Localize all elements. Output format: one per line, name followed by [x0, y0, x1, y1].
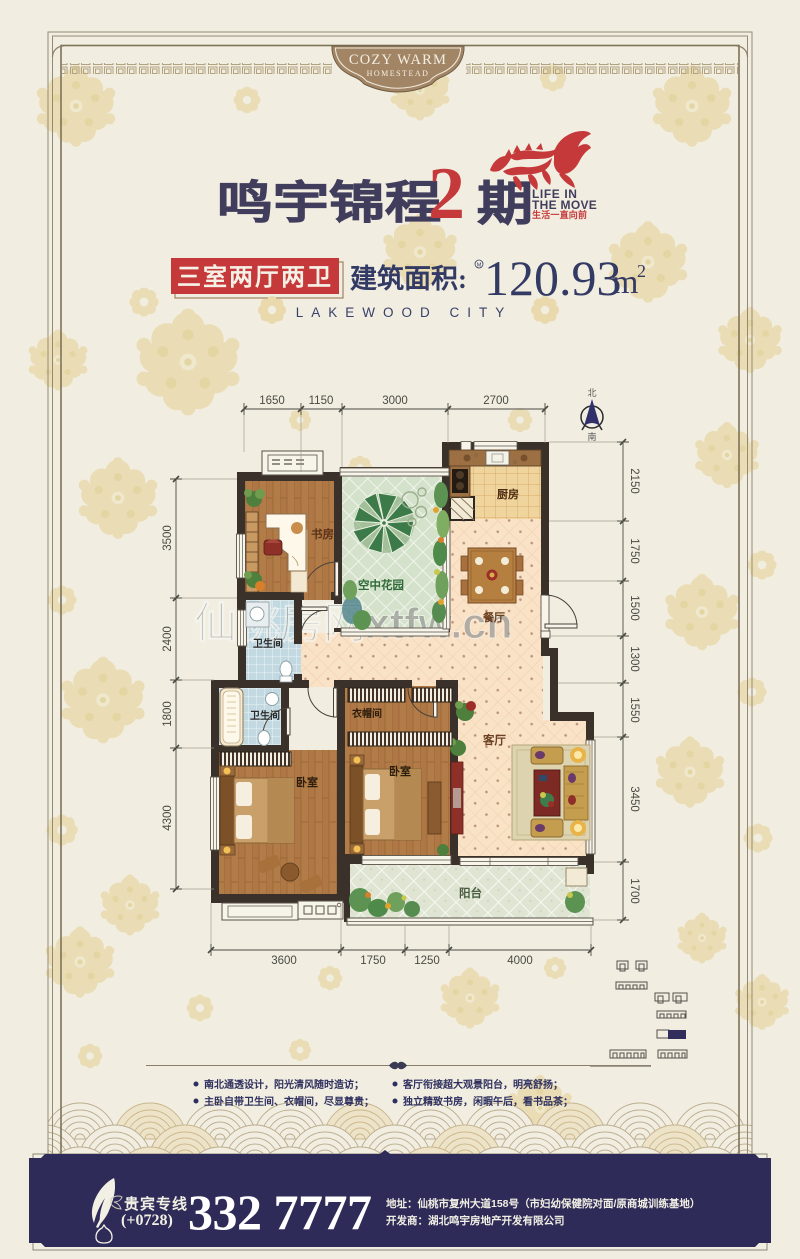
svg-text:客厅: 客厅 — [482, 733, 506, 747]
svg-text:贵宾专线: 贵宾专线 — [124, 1195, 188, 1213]
svg-text:LAKEWOOD CITY: LAKEWOOD CITY — [296, 305, 513, 320]
svg-text:卧室: 卧室 — [296, 775, 318, 789]
svg-text:3600: 3600 — [271, 955, 297, 967]
svg-text:1750: 1750 — [628, 538, 640, 564]
svg-text:卫生间: 卫生间 — [250, 709, 280, 722]
svg-text:南: 南 — [587, 431, 596, 442]
svg-text:北: 北 — [587, 388, 596, 398]
svg-text:M: M — [477, 263, 482, 269]
svg-text:期: 期 — [477, 177, 533, 230]
svg-text:2400: 2400 — [162, 626, 174, 652]
svg-text:独立精致书房，闲暇午后，看书品茶；: 独立精致书房，闲暇午后，看书品茶； — [403, 1095, 573, 1108]
svg-text:3450: 3450 — [628, 786, 640, 812]
svg-text:HOMESTEAD: HOMESTEAD — [367, 69, 430, 78]
svg-text:生活一直向前: 生活一直向前 — [532, 209, 587, 220]
svg-text:3000: 3000 — [382, 395, 408, 407]
svg-text:332 7777: 332 7777 — [188, 1184, 372, 1240]
svg-text:阳台: 阳台 — [459, 886, 482, 900]
svg-text:主卧自带卫生间、衣帽间，尽显尊贵；: 主卧自带卫生间、衣帽间，尽显尊贵； — [204, 1095, 374, 1108]
svg-text:客厅衔接超大观景阳台，明亮舒扬；: 客厅衔接超大观景阳台，明亮舒扬； — [402, 1078, 563, 1091]
svg-text:鸣宇锦程: 鸣宇锦程 — [217, 177, 441, 227]
svg-text:2: 2 — [428, 153, 465, 235]
svg-text:1700: 1700 — [628, 878, 640, 904]
svg-text:空中花园: 空中花园 — [358, 578, 404, 592]
svg-text:地址：仙桃市复州大道158号（市妇幼保健院对面/原商城训练基: 地址：仙桃市复州大道158号（市妇幼保健院对面/原商城训练基地） — [386, 1197, 700, 1210]
svg-text:三室两厅两卫: 三室两厅两卫 — [177, 263, 333, 291]
svg-text:卧室: 卧室 — [389, 764, 411, 778]
svg-text:餐厅: 餐厅 — [482, 610, 505, 624]
svg-text:2: 2 — [637, 261, 646, 281]
svg-text:1800: 1800 — [162, 701, 174, 727]
svg-text:厨房: 厨房 — [497, 487, 519, 501]
svg-text:书房: 书房 — [311, 527, 334, 541]
svg-text:120.93: 120.93 — [484, 250, 622, 306]
svg-text:南北通透设计，阳光清风随时造访；: 南北通透设计，阳光清风随时造访； — [204, 1078, 364, 1091]
svg-text:1550: 1550 — [628, 697, 640, 723]
svg-text:2700: 2700 — [483, 395, 509, 407]
svg-text:1150: 1150 — [309, 395, 334, 407]
svg-text:建筑面积:: 建筑面积: — [350, 263, 467, 294]
svg-text:衣帽间: 衣帽间 — [352, 707, 382, 720]
svg-text:开发商：湖北鸣宇房地产开发有限公司: 开发商：湖北鸣宇房地产开发有限公司 — [386, 1214, 565, 1227]
svg-text:3500: 3500 — [162, 525, 174, 551]
svg-text:4000: 4000 — [507, 955, 533, 967]
svg-text:(+0728): (+0728) — [121, 1212, 173, 1229]
svg-text:COZY WARM: COZY WARM — [349, 52, 447, 68]
svg-text:1750: 1750 — [360, 955, 386, 967]
svg-text:1250: 1250 — [414, 955, 440, 967]
svg-text:1500: 1500 — [628, 595, 640, 621]
svg-text:4300: 4300 — [162, 805, 174, 831]
svg-text:2150: 2150 — [628, 468, 640, 494]
svg-text:1650: 1650 — [259, 395, 285, 407]
svg-text:卫生间: 卫生间 — [253, 637, 283, 650]
svg-text:m: m — [612, 264, 638, 301]
svg-text:1300: 1300 — [628, 646, 640, 672]
